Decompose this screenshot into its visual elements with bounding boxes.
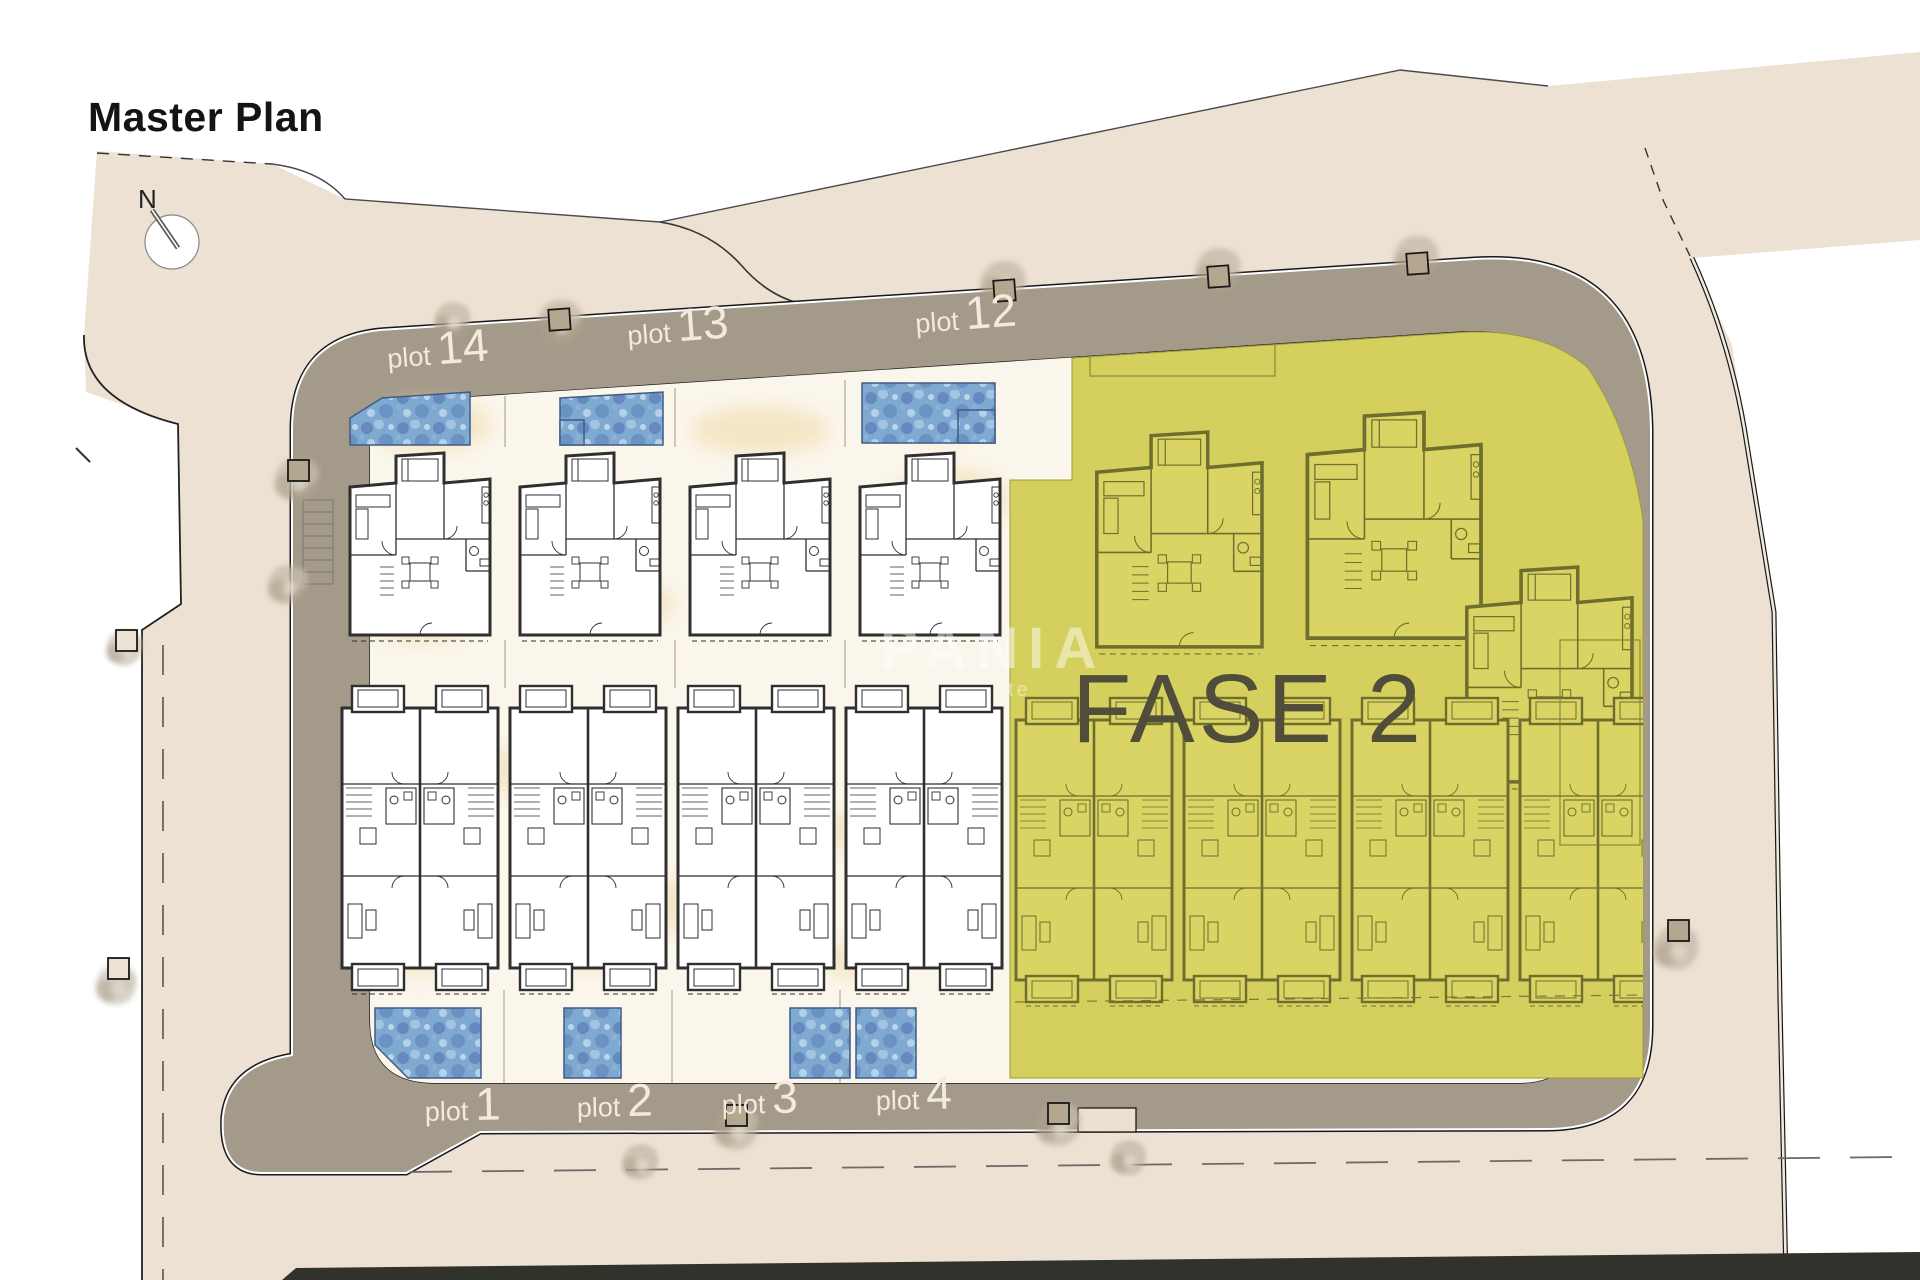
watermark-text: PANIA — [880, 616, 1106, 681]
watermark-subtext: te — [1008, 679, 1031, 701]
north-label: N — [138, 184, 157, 214]
site-plan-drawing: plot14 plot13 plot12 plot1 plot2 plot3 p… — [0, 0, 1920, 1280]
road-notch — [1078, 1108, 1136, 1132]
pool-plot-2 — [564, 1008, 621, 1078]
pool-plot-12-steps — [958, 410, 995, 443]
master-plan-canvas: plot14 plot13 plot12 plot1 plot2 plot3 p… — [0, 0, 1920, 1280]
pool-plot-3 — [790, 1008, 850, 1078]
pool-plot-13-steps — [560, 420, 584, 445]
page-title: Master Plan — [88, 94, 324, 140]
pool-plot-4 — [856, 1008, 916, 1078]
phase-2-label: FASE 2 — [1072, 654, 1425, 763]
phase1-buildings — [303, 453, 1002, 994]
